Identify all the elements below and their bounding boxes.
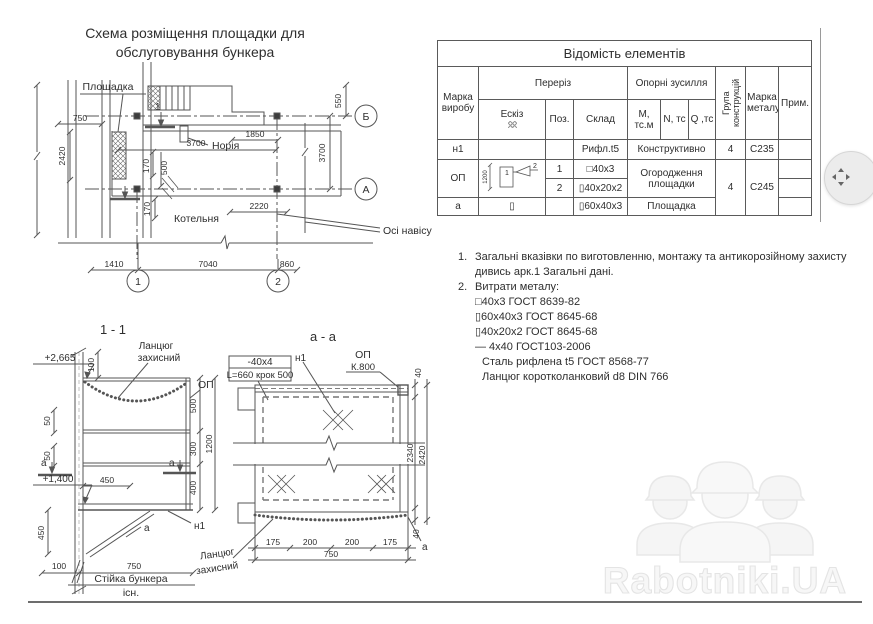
s11-dim-100-bot: 100 bbox=[52, 561, 66, 571]
op-sketch-pos2: 2 bbox=[533, 163, 537, 170]
note1-line2: дивись арк.1 Загальні дані. bbox=[458, 265, 863, 280]
saa-dim-175-1: 175 bbox=[266, 537, 280, 547]
plan-axis-2: 2 bbox=[275, 276, 281, 288]
s11-elev-mid: +1,400 bbox=[43, 474, 74, 485]
saa-strip-label-1: -40x4 bbox=[247, 357, 272, 368]
drawing-title-line1: Схема розміщення площадки для bbox=[60, 24, 330, 43]
table-row-op-1: ОП 1200 1 2 bbox=[438, 160, 812, 179]
saa-dim-40-top: 40 bbox=[413, 368, 423, 378]
plan-label-noriya: Норія bbox=[212, 140, 239, 152]
note2-item-3: ▯40x20x2 ГОСТ 8645-68 bbox=[458, 325, 863, 340]
cell-grupa-n1: 4 bbox=[716, 140, 746, 160]
op-sketch-dim-1200: 1200 bbox=[483, 170, 489, 184]
cell-marka-op: ОП bbox=[438, 160, 479, 198]
cell-poz-n1 bbox=[546, 140, 574, 160]
col-header-prym: Прим. bbox=[779, 67, 812, 140]
plan-dim-170b: 170 bbox=[142, 202, 152, 216]
note2-item-5: Сталь рифлена t5 ГОСТ 8568-77 bbox=[458, 355, 863, 370]
col-header-grupa-text: Група конструкцій bbox=[721, 67, 741, 139]
col-header-m: М, тс.м bbox=[628, 100, 661, 140]
cell-poz-op1: 1 bbox=[546, 160, 574, 179]
note2-item-1: □40x3 ГОСТ 8639-82 bbox=[458, 295, 863, 310]
saa-dim-750: 750 bbox=[324, 549, 338, 559]
sheet-frame-bottom-line bbox=[28, 601, 862, 603]
cell-eskiz-op: 1200 1 2 bbox=[479, 160, 546, 198]
note2-item-4: — 4x40 ГОСТ103-2006 bbox=[458, 340, 863, 355]
col-header-grupa: Група конструкцій bbox=[716, 67, 746, 140]
plan-label-ploshchadka: Площадка bbox=[83, 81, 134, 93]
move-arrows-icon bbox=[832, 168, 850, 186]
note2-item-6: Ланцюг коротколанковий d8 DIN 766 bbox=[458, 370, 863, 385]
col-header-oporni: Опорні зусилля bbox=[628, 67, 716, 100]
plan-cut-mark-label: 1 bbox=[155, 102, 161, 113]
plan-linework bbox=[34, 62, 380, 292]
col-header-q: Q ,тс bbox=[689, 100, 716, 140]
notes-block: 1. Загальні вказівки по виготовленню, мо… bbox=[458, 250, 863, 385]
drawing-sheet: Схема розміщення площадки для обслуговув… bbox=[0, 0, 873, 624]
cell-prym-op2 bbox=[779, 179, 812, 198]
plan-dim-2420: 2420 bbox=[57, 146, 67, 165]
plan-dim-550: 550 bbox=[333, 94, 343, 108]
saa-op-label-1: ОП bbox=[355, 349, 371, 361]
s11-stiyka-label-1: Стійка бункера bbox=[94, 573, 167, 585]
elements-table-title: Відомість елементів bbox=[438, 41, 812, 67]
plan-axis-1: 1 bbox=[135, 276, 141, 288]
saa-dim-200-1: 200 bbox=[303, 537, 317, 547]
col-header-n: N, тс bbox=[661, 100, 689, 140]
saa-strip-label-2: L=660 крок 500 bbox=[227, 370, 294, 381]
s11-elev-top: +2,665 bbox=[45, 353, 76, 364]
s11-stiyka-label-2: існ. bbox=[123, 587, 139, 599]
col-header-eskiz-text: Ескіз bbox=[480, 109, 544, 120]
s11-dim-50-1: 50 bbox=[42, 416, 52, 426]
col-header-marka-vyrobu: Марка виробу bbox=[438, 67, 479, 140]
plan-dim-3700v: 3700 bbox=[317, 143, 327, 162]
note2-title: Витрати металу: bbox=[475, 280, 559, 295]
s11-a-right: а bbox=[169, 458, 175, 469]
s11-a-left: а bbox=[41, 458, 47, 469]
cell-marka-a: а bbox=[438, 198, 479, 216]
note1-line1: Загальні вказівки по виготовленню, монта… bbox=[475, 250, 847, 265]
plan-label-kotelnya: Котельня bbox=[174, 213, 219, 225]
op-sketch: 1200 1 2 bbox=[480, 160, 544, 194]
s11-dim-450h: 450 bbox=[100, 475, 114, 485]
note2-item-2: ▯60x40x3 ГОСТ 8645-68 bbox=[458, 310, 863, 325]
saa-chain-label-1: Ланцюг bbox=[199, 547, 235, 563]
saa-dim-2420: 2420 bbox=[417, 445, 427, 464]
note2-number: 2. bbox=[458, 280, 475, 295]
cell-oporni-a: Площадка bbox=[628, 198, 716, 216]
s11-dim-450v: 450 bbox=[36, 526, 46, 540]
saa-dim-200-2: 200 bbox=[345, 537, 359, 547]
cell-oporni-op: Огородження площадки bbox=[628, 160, 716, 198]
plan-dim-7040: 7040 bbox=[199, 259, 218, 269]
elements-table: Відомість елементів Марка виробу Переріз… bbox=[437, 40, 812, 216]
section-a-a-drawing: а - а -40x4 L=660 крок 500 н1 ОП К.800 4… bbox=[188, 325, 438, 603]
plan-dim-2220: 2220 bbox=[250, 201, 269, 211]
cell-metal-n1: С235 bbox=[746, 140, 779, 160]
cell-eskiz-n1 bbox=[479, 140, 546, 160]
s11-chain-label-2: захисний bbox=[138, 353, 180, 364]
plan-axis-B: Б bbox=[363, 111, 370, 123]
saa-op-label-2: К.800 bbox=[351, 362, 375, 373]
cell-sklad-n1: Рифл.t5 bbox=[574, 140, 628, 160]
saa-n1-label: н1 bbox=[295, 353, 307, 364]
cell-metal-op: С245 bbox=[746, 160, 779, 216]
pan-tool-button[interactable] bbox=[824, 151, 873, 205]
col-header-pereriz: Переріз bbox=[479, 67, 628, 100]
section-a-a-linework bbox=[229, 356, 430, 563]
sheet-frame-right-line bbox=[820, 28, 821, 222]
cell-marka-n1: н1 bbox=[438, 140, 479, 160]
s11-dim-750: 750 bbox=[127, 561, 141, 571]
plan-dim-750: 750 bbox=[73, 113, 87, 123]
watermark: Rabotniki.UA bbox=[585, 450, 865, 605]
plan-dim-3700h: 3700 bbox=[187, 138, 206, 148]
saa-a-mark: а bbox=[422, 542, 428, 553]
plan-dim-1410: 1410 bbox=[105, 259, 124, 269]
cell-prym-a bbox=[779, 198, 812, 216]
section-a-a-title: а - а bbox=[310, 329, 337, 344]
saa-chain-label-2: захисний bbox=[195, 560, 239, 577]
cell-sklad-op2: ▯40x20x2 bbox=[574, 179, 628, 198]
eskiz-hatch-mark bbox=[508, 121, 517, 128]
s11-chain-label-1: Ланцюг bbox=[139, 341, 174, 352]
plan-label-osi-navisu: Осі навісу bbox=[383, 225, 432, 237]
cell-oporni-n1: Конструктивно bbox=[628, 140, 716, 160]
cell-poz-op2: 2 bbox=[546, 179, 574, 198]
plan-axis-A: А bbox=[362, 184, 369, 196]
cell-prym-op1 bbox=[779, 160, 812, 179]
cell-poz-a bbox=[546, 198, 574, 216]
cell-sklad-a: ▯60x40x3 bbox=[574, 198, 628, 216]
s11-dim-100-top: 100 bbox=[86, 358, 96, 372]
saa-dim-2340: 2340 bbox=[405, 443, 415, 462]
note1-number: 1. bbox=[458, 250, 475, 265]
plan-dim-500: 500 bbox=[159, 161, 169, 175]
col-header-poz: Поз. bbox=[546, 100, 574, 140]
plan-dim-1850: 1850 bbox=[246, 129, 265, 139]
section-1-1-title: 1 - 1 bbox=[100, 322, 126, 337]
saa-dim-40-bot: 40 bbox=[411, 529, 421, 539]
cell-prym-n1 bbox=[779, 140, 812, 160]
col-header-marka-metalu: Марка металу bbox=[746, 67, 779, 140]
cell-sklad-op1: □40x3 bbox=[574, 160, 628, 179]
table-row-n1: н1 Рифл.t5 Конструктивно 4 С235 bbox=[438, 140, 812, 160]
plan-dim-860: 860 bbox=[280, 259, 294, 269]
col-header-eskiz: Ескіз bbox=[479, 100, 546, 140]
cell-eskiz-a: ▯ bbox=[479, 198, 546, 216]
workers-icon bbox=[637, 462, 813, 562]
cell-grupa-op: 4 bbox=[716, 160, 746, 216]
plan-dim-170a: 170 bbox=[141, 159, 151, 173]
col-header-sklad: Склад bbox=[574, 100, 628, 140]
saa-dim-175-2: 175 bbox=[383, 537, 397, 547]
plan-view-drawing: Площадка 750 1 2420 Норія 3700 550 1850 … bbox=[28, 56, 438, 302]
watermark-text: Rabotniki.UA bbox=[603, 560, 847, 601]
op-sketch-pos1: 1 bbox=[505, 170, 509, 177]
s11-a-brace: а bbox=[144, 523, 150, 534]
